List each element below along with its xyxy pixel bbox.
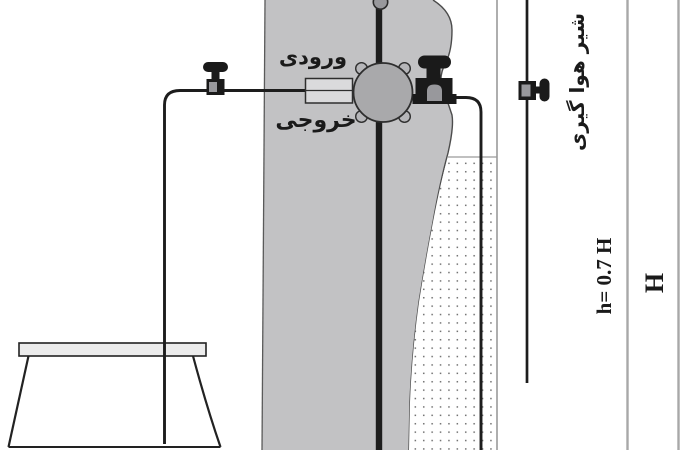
air-valve-inset <box>522 85 531 97</box>
waste-valve-neck <box>427 66 441 80</box>
drive-pipe-knob <box>373 0 387 9</box>
collection-bucket <box>9 343 221 447</box>
pump-body <box>354 63 413 123</box>
shutoff-valve-inset <box>209 82 217 92</box>
inlet-outlet-port <box>306 79 353 104</box>
inlet-label: ورودی <box>279 45 347 69</box>
pump-housing <box>354 63 413 122</box>
bucket-right-side <box>193 356 221 447</box>
air-bleed-valve-icon <box>519 79 550 102</box>
bucket-rim <box>19 343 206 356</box>
air-valve-handle <box>540 79 550 102</box>
supply-head-label: H <box>640 273 669 293</box>
air-bleed-valve-label: شیر هوا گیری <box>565 13 589 151</box>
hydraulic-ram-diagram: ورودی خروجی شیر هوا گیری h= 0.7 H H <box>0 0 700 450</box>
delivery-head-label: h= 0.7 H <box>592 238 616 315</box>
head-guide-lines <box>628 0 679 450</box>
diagram-canvas: ورودی خروجی شیر هوا گیری h= 0.7 H H <box>0 0 700 450</box>
bucket-left-side <box>9 356 29 447</box>
air-bleed-line <box>519 0 550 383</box>
shutoff-valve-icon <box>203 62 228 95</box>
waste-valve-icon <box>413 56 457 105</box>
outlet-label: خروجی <box>275 108 356 133</box>
waste-valve-arch-inset <box>427 85 442 102</box>
